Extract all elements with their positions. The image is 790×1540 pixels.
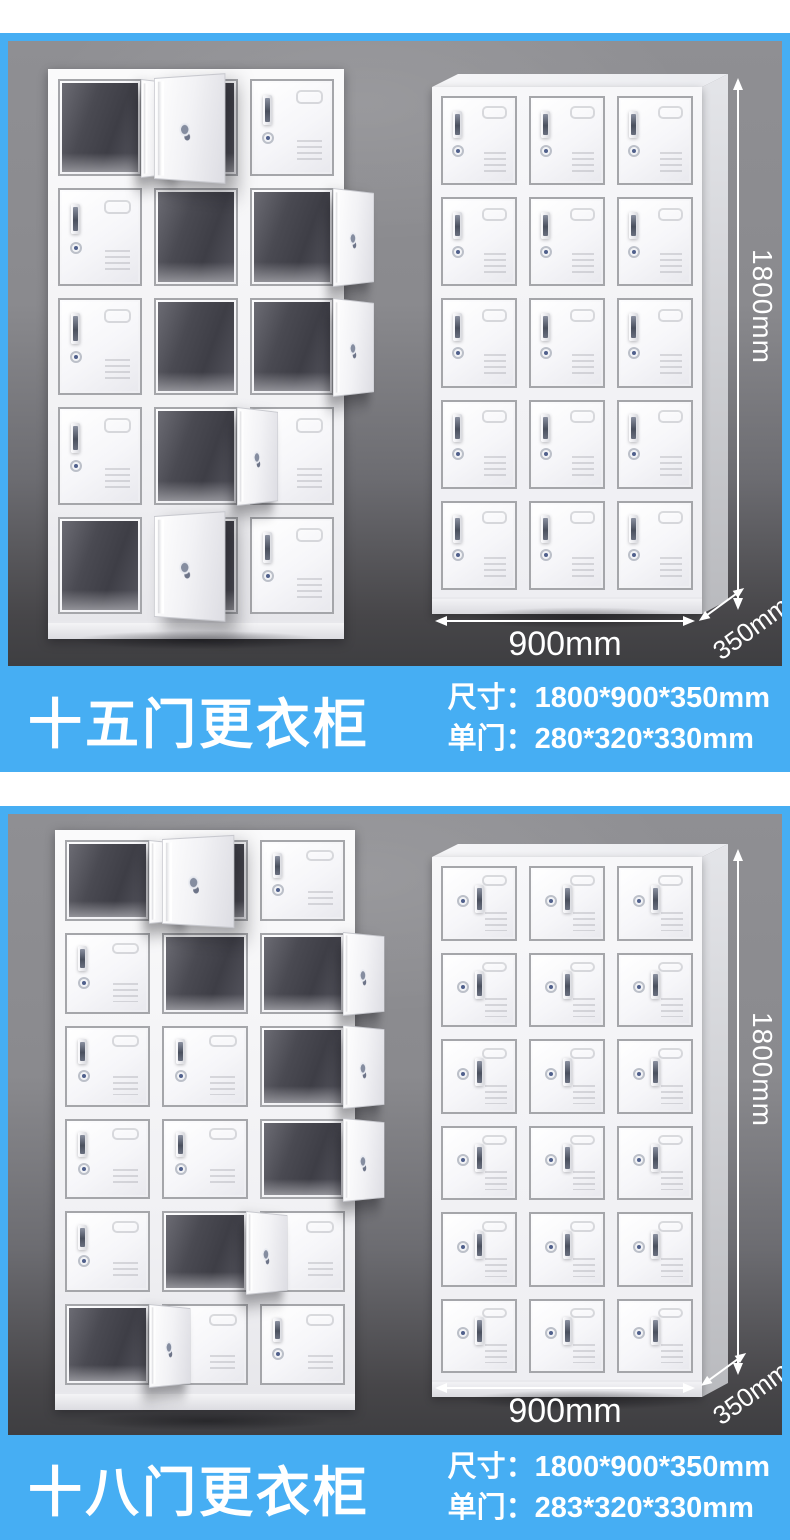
door-handle-icon — [71, 313, 80, 343]
locker-door-closed — [526, 950, 608, 1031]
open-locker-illustration-18 — [55, 830, 355, 1410]
locker-door-closed — [438, 498, 520, 593]
locker-door-closed — [55, 295, 145, 398]
open-door-panel — [343, 932, 384, 1016]
door-emboss-panel — [482, 1221, 506, 1232]
door-emboss-panel — [658, 208, 682, 221]
door-vent-slots — [210, 1076, 235, 1094]
door-vent-slots — [573, 1171, 595, 1190]
door-lock-with-keys-icon — [264, 1250, 269, 1259]
door-emboss-panel — [482, 962, 506, 973]
door-vent-slots — [661, 1258, 683, 1277]
door-handle-icon — [176, 1132, 185, 1157]
locker-compartment-interior — [254, 192, 330, 281]
locker-compartment-interior — [158, 411, 234, 500]
locker-door-open — [151, 185, 241, 288]
door-emboss-panel — [112, 1035, 140, 1047]
locker-door-closed — [614, 1296, 696, 1377]
door-vent-slots — [572, 456, 594, 476]
door-emboss-panel — [658, 511, 682, 524]
locker-door-closed — [438, 295, 520, 390]
locker-compartment-interior — [254, 302, 330, 391]
door-handle-icon — [651, 885, 660, 913]
open-door-panel — [333, 188, 374, 287]
door-vent-slots — [573, 1085, 595, 1104]
door-hinge-edge — [152, 1307, 156, 1383]
door-emboss-panel — [482, 875, 506, 886]
height-dimension-label: 1800mm — [746, 249, 778, 364]
door-vent-slots — [113, 1076, 138, 1094]
door-emboss-panel — [658, 1221, 682, 1232]
door-vent-slots — [484, 253, 506, 273]
door-lock-with-keys-icon — [350, 344, 355, 353]
door-lock-with-keys-icon — [190, 878, 197, 887]
product-title: 十八门更衣柜 — [28, 1448, 370, 1527]
door-vent-slots — [308, 1262, 333, 1280]
product-card-18-door: 1800mm 900mm 350mm — [0, 806, 790, 1435]
door-vent-slots — [105, 359, 129, 381]
door-handle-icon — [475, 1317, 484, 1345]
door-handle-icon — [263, 95, 272, 125]
open-door-panel — [246, 1211, 287, 1295]
door-lock-icon — [545, 1327, 557, 1339]
locker-door-open — [151, 76, 241, 179]
door-handle-icon — [453, 515, 462, 543]
door-emboss-panel — [296, 90, 323, 104]
locker-door-closed — [614, 1123, 696, 1204]
door-vent-slots — [113, 1262, 138, 1280]
door-vent-slots — [485, 1344, 507, 1363]
locker-door-closed — [257, 1301, 348, 1388]
locker-compartment-interior — [62, 521, 138, 610]
door-lock-with-keys-icon — [181, 125, 188, 134]
locker-door-closed — [526, 295, 608, 390]
door-handle-icon — [563, 1317, 572, 1345]
spec-single-door-size: 单门：280*320*330mm — [448, 719, 770, 760]
cabinet-front-face — [432, 87, 702, 614]
locker-door-closed — [438, 194, 520, 289]
locker-door-open — [159, 930, 250, 1017]
door-handle-icon — [453, 212, 462, 240]
locker-door-closed — [438, 950, 520, 1031]
locker-door-open — [247, 295, 337, 398]
product-photo-scene-18: 1800mm 900mm 350mm — [8, 814, 782, 1435]
door-lock-icon — [545, 1068, 557, 1080]
locker-compartment-interior — [264, 1123, 341, 1196]
door-lock-icon — [70, 351, 82, 363]
door-emboss-panel — [570, 1308, 594, 1319]
door-vent-slots — [210, 1355, 235, 1373]
door-handle-icon — [563, 1231, 572, 1259]
door-lock-icon — [175, 1163, 187, 1175]
product-banner-15-door: 十五门更衣柜 尺寸：1800*900*350mm 单门：280*320*330m… — [0, 666, 790, 772]
promo-page: { "theme": { "banner_blue": "#46aef3", "… — [0, 0, 790, 1540]
door-lock-icon — [78, 977, 90, 989]
door-lock-icon — [457, 1154, 469, 1166]
locker-compartment-interior — [166, 1215, 243, 1288]
door-lock-icon — [452, 246, 464, 258]
height-dimension-arrow — [730, 77, 746, 616]
door-vent-slots — [661, 1085, 683, 1104]
door-emboss-panel — [482, 1308, 506, 1319]
locker-door-closed — [438, 1296, 520, 1377]
door-handle-icon — [273, 853, 282, 878]
door-lock-icon — [272, 884, 284, 896]
door-emboss-panel — [104, 200, 131, 214]
door-lock-icon — [545, 895, 557, 907]
door-handle-icon — [651, 1144, 660, 1172]
door-vent-slots — [573, 912, 595, 931]
door-emboss-panel — [570, 511, 594, 524]
door-vent-slots — [661, 1171, 683, 1190]
locker-door-closed — [614, 194, 696, 289]
door-vent-slots — [308, 891, 333, 909]
locker-door-closed — [438, 863, 520, 944]
locker-door-open — [55, 514, 145, 617]
open-door-panel — [162, 835, 234, 929]
locker-door-closed — [438, 397, 520, 492]
product-card-15-door: 1800mm 900mm 350mm — [0, 33, 790, 666]
door-handle-icon — [563, 1144, 572, 1172]
door-emboss-panel — [570, 875, 594, 886]
door-lock-icon — [457, 1241, 469, 1253]
locker-door-closed — [526, 863, 608, 944]
door-vent-slots — [661, 998, 683, 1017]
locker-door-open — [159, 1208, 250, 1295]
locker-door-open — [62, 837, 153, 924]
door-emboss-panel — [658, 1048, 682, 1059]
locker-compartment-interior — [158, 302, 234, 391]
door-emboss-panel — [482, 1135, 506, 1146]
door-handle-icon — [541, 515, 550, 543]
door-lock-icon — [457, 1068, 469, 1080]
door-handle-icon — [453, 111, 462, 139]
locker-compartment-interior — [69, 1308, 146, 1381]
door-handle-icon — [475, 1144, 484, 1172]
locker-door-open — [257, 1116, 348, 1203]
locker-door-closed — [526, 397, 608, 492]
door-vent-slots — [572, 557, 594, 577]
door-lock-icon — [545, 981, 557, 993]
door-handle-icon — [541, 111, 550, 139]
door-emboss-panel — [482, 106, 506, 119]
door-lock-icon — [452, 448, 464, 460]
door-lock-icon — [452, 347, 464, 359]
door-lock-icon — [78, 1070, 90, 1082]
locker-door-closed — [614, 295, 696, 390]
locker-door-open — [159, 837, 250, 924]
locker-door-open — [257, 1023, 348, 1110]
open-door-panel — [333, 298, 374, 397]
locker-door-closed — [257, 837, 348, 924]
locker-door-open — [151, 295, 241, 398]
door-vent-slots — [660, 152, 682, 172]
door-lock-icon — [628, 347, 640, 359]
locker-door-closed — [526, 93, 608, 188]
door-emboss-panel — [104, 309, 131, 323]
door-emboss-panel — [570, 410, 594, 423]
locker-door-closed — [526, 498, 608, 593]
locker-door-closed — [614, 1036, 696, 1117]
door-vent-slots — [661, 912, 683, 931]
door-handle-icon — [541, 212, 550, 240]
door-lock-icon — [457, 1327, 469, 1339]
door-lock-icon — [628, 145, 640, 157]
cabinet-top-face — [432, 844, 728, 857]
door-handle-icon — [71, 204, 80, 234]
door-vent-slots — [485, 1171, 507, 1190]
door-handle-icon — [541, 414, 550, 442]
locker-door-closed — [159, 1116, 250, 1203]
door-emboss-panel — [658, 875, 682, 886]
door-lock-icon — [452, 145, 464, 157]
door-emboss-panel — [209, 1035, 237, 1047]
door-lock-icon — [540, 549, 552, 561]
door-vent-slots — [210, 1169, 235, 1187]
door-handle-icon — [263, 532, 272, 562]
door-emboss-panel — [570, 106, 594, 119]
door-emboss-panel — [658, 410, 682, 423]
door-lock-icon — [540, 246, 552, 258]
door-lock-icon — [633, 1327, 645, 1339]
door-vent-slots — [308, 1355, 333, 1373]
closed-locker-illustration-15 — [432, 74, 728, 614]
door-vent-slots — [660, 253, 682, 273]
door-handle-icon — [563, 885, 572, 913]
door-lock-with-keys-icon — [166, 1342, 171, 1351]
door-emboss-panel — [482, 1048, 506, 1059]
locker-compartment-interior — [264, 1030, 341, 1103]
locker-door-closed — [62, 1116, 153, 1203]
door-handle-icon — [475, 971, 484, 999]
door-vent-slots — [485, 998, 507, 1017]
cabinet-top-face — [432, 74, 728, 87]
locker-door-closed — [526, 1296, 608, 1377]
door-emboss-panel — [570, 962, 594, 973]
locker-compartment-interior — [264, 937, 341, 1010]
cabinet-side-face — [702, 844, 728, 1397]
door-lock-with-keys-icon — [361, 971, 366, 980]
locker-door-closed — [62, 1023, 153, 1110]
door-handle-icon — [71, 423, 80, 453]
door-vent-slots — [660, 354, 682, 374]
locker-door-closed — [438, 1123, 520, 1204]
door-emboss-panel — [112, 1128, 140, 1140]
door-handle-icon — [78, 1039, 87, 1064]
door-vent-slots — [113, 1169, 138, 1187]
door-emboss-panel — [112, 943, 140, 955]
spec-overall-size: 尺寸：1800*900*350mm — [448, 1447, 770, 1488]
section-gap — [0, 772, 790, 806]
locker-door-closed — [526, 1209, 608, 1290]
door-emboss-panel — [570, 1221, 594, 1232]
door-vent-slots — [297, 140, 321, 162]
cabinet-side-face — [702, 74, 728, 614]
door-lock-icon — [457, 981, 469, 993]
locker-door-closed — [62, 930, 153, 1017]
door-lock-icon — [262, 570, 274, 582]
locker-door-open — [257, 930, 348, 1017]
door-emboss-panel — [296, 418, 323, 432]
door-emboss-panel — [570, 309, 594, 322]
door-hinge-edge — [346, 936, 350, 1012]
door-lock-icon — [70, 460, 82, 472]
door-vent-slots — [484, 557, 506, 577]
door-vent-slots — [573, 1344, 595, 1363]
door-hinge-edge — [143, 83, 147, 174]
door-lock-icon — [540, 448, 552, 460]
cabinet-front-face — [432, 857, 702, 1397]
door-handle-icon — [563, 1058, 572, 1086]
door-handle-icon — [78, 946, 87, 971]
door-handle-icon — [651, 1058, 660, 1086]
locker-door-closed — [438, 93, 520, 188]
locker-door-open — [62, 1301, 153, 1388]
door-vent-slots — [660, 557, 682, 577]
door-lock-with-keys-icon — [361, 1064, 366, 1073]
door-vent-slots — [660, 456, 682, 476]
open-door-panel — [343, 1025, 384, 1109]
door-handle-icon — [453, 414, 462, 442]
door-emboss-panel — [306, 850, 334, 862]
open-door-panel — [343, 1118, 384, 1202]
locker-door-closed — [526, 1123, 608, 1204]
door-lock-icon — [545, 1241, 557, 1253]
door-lock-icon — [633, 895, 645, 907]
locker-door-closed — [247, 76, 337, 179]
door-hinge-edge — [335, 193, 339, 284]
locker-door-closed — [438, 1209, 520, 1290]
product-specs: 尺寸：1800*900*350mm 单门：280*320*330mm — [448, 678, 770, 760]
door-hinge-edge — [249, 1215, 253, 1291]
height-dimension-arrow — [730, 848, 746, 1381]
top-white-margin — [0, 0, 790, 33]
door-hinge-edge — [346, 1122, 350, 1198]
door-vent-slots — [113, 983, 138, 1001]
locker-door-open — [151, 404, 241, 507]
door-emboss-panel — [306, 1221, 334, 1233]
door-handle-icon — [475, 1058, 484, 1086]
door-emboss-panel — [570, 1048, 594, 1059]
door-hinge-edge — [335, 302, 339, 393]
door-vent-slots — [661, 1344, 683, 1363]
door-lock-icon — [70, 242, 82, 254]
open-door-panel — [154, 73, 225, 184]
door-handle-icon — [629, 515, 638, 543]
locker-door-open — [151, 514, 241, 617]
locker-door-closed — [159, 1023, 250, 1110]
width-dimension-label: 900mm — [434, 625, 696, 664]
door-hinge-edge — [166, 842, 172, 921]
door-lock-icon — [272, 1348, 284, 1360]
door-lock-icon — [457, 895, 469, 907]
door-emboss-panel — [658, 962, 682, 973]
locker-door-open — [55, 76, 145, 179]
door-emboss-panel — [658, 106, 682, 119]
door-lock-icon — [452, 549, 464, 561]
door-handle-icon — [563, 971, 572, 999]
door-lock-icon — [78, 1255, 90, 1267]
locker-door-closed — [614, 1209, 696, 1290]
locker-door-closed — [62, 1208, 153, 1295]
door-lock-icon — [540, 145, 552, 157]
door-handle-icon — [273, 1318, 282, 1343]
door-emboss-panel — [658, 1135, 682, 1146]
door-vent-slots — [573, 1258, 595, 1277]
door-lock-with-keys-icon — [361, 1157, 366, 1166]
door-emboss-panel — [104, 418, 131, 432]
locker-door-closed — [614, 93, 696, 188]
door-vent-slots — [572, 354, 594, 374]
door-vent-slots — [485, 912, 507, 931]
door-emboss-panel — [482, 410, 506, 423]
door-vent-slots — [484, 456, 506, 476]
open-door-panel — [154, 511, 225, 622]
door-lock-with-keys-icon — [254, 453, 259, 462]
door-lock-icon — [633, 1241, 645, 1253]
door-handle-icon — [475, 885, 484, 913]
open-door-panel — [237, 407, 278, 506]
door-vent-slots — [485, 1085, 507, 1104]
closed-locker-illustration-18 — [432, 844, 728, 1397]
door-lock-with-keys-icon — [350, 234, 355, 243]
door-handle-icon — [541, 313, 550, 341]
door-lock-with-keys-icon — [181, 562, 188, 571]
door-handle-icon — [651, 971, 660, 999]
door-emboss-panel — [482, 309, 506, 322]
width-dimension-label: 900mm — [434, 1392, 696, 1431]
locker-compartment-interior — [62, 83, 138, 172]
door-lock-icon — [262, 132, 274, 144]
door-lock-icon — [175, 1070, 187, 1082]
open-door-panel — [149, 1304, 190, 1388]
door-handle-icon — [78, 1225, 87, 1250]
door-vent-slots — [297, 468, 321, 490]
door-lock-icon — [78, 1163, 90, 1175]
door-lock-icon — [628, 549, 640, 561]
height-dimension-label: 1800mm — [746, 1012, 778, 1127]
door-lock-icon — [633, 981, 645, 993]
door-emboss-panel — [570, 208, 594, 221]
product-banner-18-door: 十八门更衣柜 尺寸：1800*900*350mm 单门：283*320*330m… — [0, 1435, 790, 1540]
door-vent-slots — [572, 253, 594, 273]
door-handle-icon — [629, 111, 638, 139]
locker-door-closed — [614, 397, 696, 492]
door-emboss-panel — [570, 1135, 594, 1146]
locker-compartment-interior — [166, 937, 243, 1010]
locker-door-closed — [55, 404, 145, 507]
door-handle-icon — [629, 414, 638, 442]
door-vent-slots — [485, 1258, 507, 1277]
door-handle-icon — [629, 313, 638, 341]
locker-door-closed — [614, 863, 696, 944]
locker-door-closed — [526, 1036, 608, 1117]
door-emboss-panel — [209, 1128, 237, 1140]
locker-compartment-interior — [158, 192, 234, 281]
spec-overall-size: 尺寸：1800*900*350mm — [448, 678, 770, 719]
door-emboss-panel — [306, 1314, 334, 1326]
door-handle-icon — [475, 1231, 484, 1259]
door-lock-icon — [628, 246, 640, 258]
door-handle-icon — [453, 313, 462, 341]
door-handle-icon — [651, 1317, 660, 1345]
door-lock-icon — [628, 448, 640, 460]
door-vent-slots — [484, 152, 506, 172]
door-emboss-panel — [112, 1221, 140, 1233]
door-handle-icon — [651, 1231, 660, 1259]
door-handle-icon — [176, 1039, 185, 1064]
door-vent-slots — [105, 250, 129, 272]
